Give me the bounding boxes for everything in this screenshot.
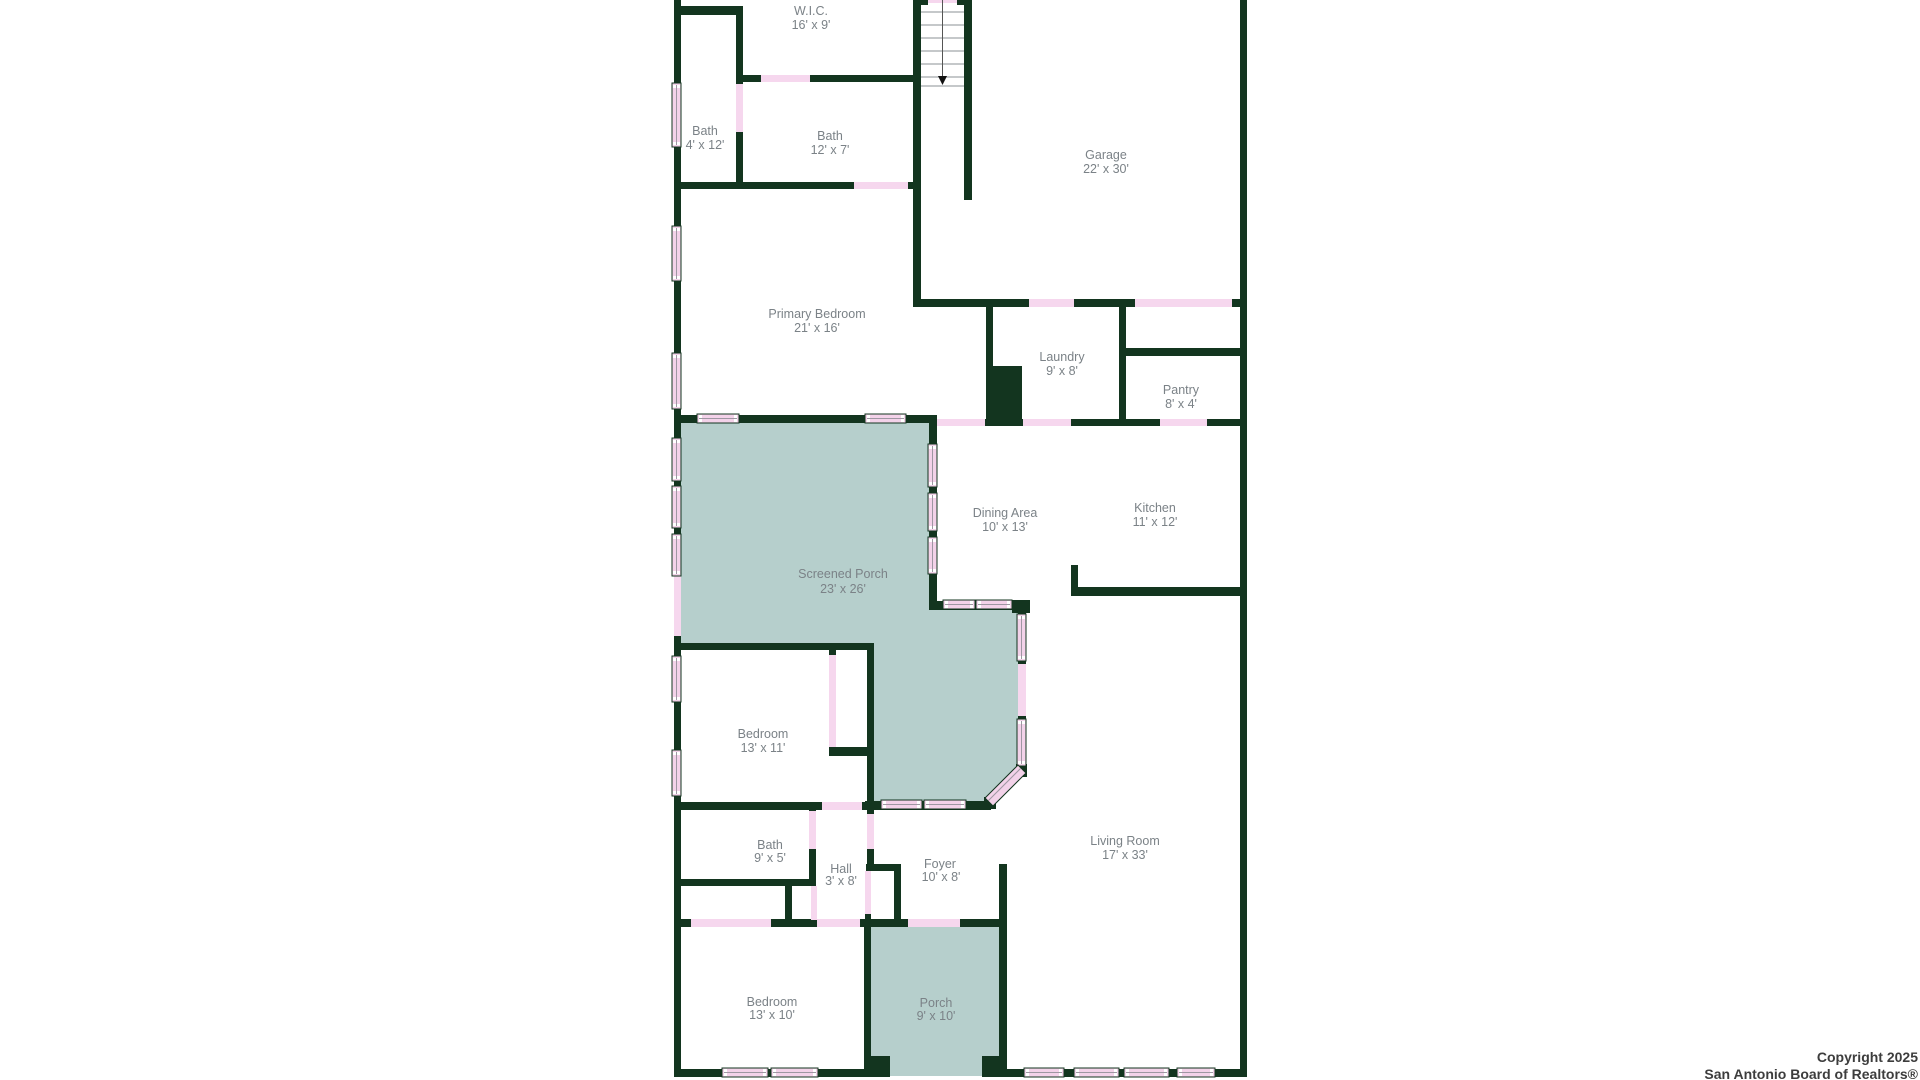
svg-text:21' x 16': 21' x 16' <box>794 321 840 335</box>
svg-text:Kitchen: Kitchen <box>1134 501 1176 515</box>
svg-text:Primary Bedroom: Primary Bedroom <box>768 307 865 321</box>
svg-text:Bedroom: Bedroom <box>747 995 798 1009</box>
svg-text:16' x 9': 16' x 9' <box>792 18 831 32</box>
svg-text:Living Room: Living Room <box>1090 834 1159 848</box>
svg-text:Bedroom: Bedroom <box>738 727 789 741</box>
svg-text:Screened Porch: Screened Porch <box>798 567 888 581</box>
svg-text:8' x 4': 8' x 4' <box>1165 397 1197 411</box>
svg-text:12' x 7': 12' x 7' <box>811 143 850 157</box>
svg-text:17' x 33': 17' x 33' <box>1102 848 1148 862</box>
svg-text:9' x 8': 9' x 8' <box>1046 364 1078 378</box>
svg-text:Copyright 2025: Copyright 2025 <box>1817 1049 1918 1065</box>
svg-text:Porch: Porch <box>920 996 953 1010</box>
svg-text:11' x 12': 11' x 12' <box>1133 515 1178 529</box>
svg-text:23' x 26': 23' x 26' <box>820 582 866 596</box>
svg-text:13' x 10': 13' x 10' <box>749 1008 795 1022</box>
svg-text:4' x 12': 4' x 12' <box>686 138 725 152</box>
svg-text:22' x 30': 22' x 30' <box>1083 162 1129 176</box>
svg-text:10' x 13': 10' x 13' <box>982 520 1028 534</box>
svg-text:W.I.C.: W.I.C. <box>794 4 828 18</box>
svg-text:9' x 10': 9' x 10' <box>917 1009 956 1023</box>
svg-text:Bath: Bath <box>817 129 843 143</box>
svg-text:Bath: Bath <box>757 838 783 852</box>
svg-text:Pantry: Pantry <box>1163 383 1200 397</box>
svg-text:Foyer: Foyer <box>924 857 956 871</box>
svg-text:3' x 8': 3' x 8' <box>825 874 857 888</box>
svg-text:10' x 8': 10' x 8' <box>922 870 961 884</box>
svg-text:13' x 11': 13' x 11' <box>741 741 786 755</box>
svg-text:Garage: Garage <box>1085 148 1127 162</box>
svg-text:Laundry: Laundry <box>1039 350 1085 364</box>
svg-text:San Antonio Board of Realtors®: San Antonio Board of Realtors® <box>1704 1066 1918 1080</box>
svg-text:Bath: Bath <box>692 124 718 138</box>
svg-text:9' x 5': 9' x 5' <box>754 851 786 865</box>
svg-text:Dining Area: Dining Area <box>973 506 1038 520</box>
